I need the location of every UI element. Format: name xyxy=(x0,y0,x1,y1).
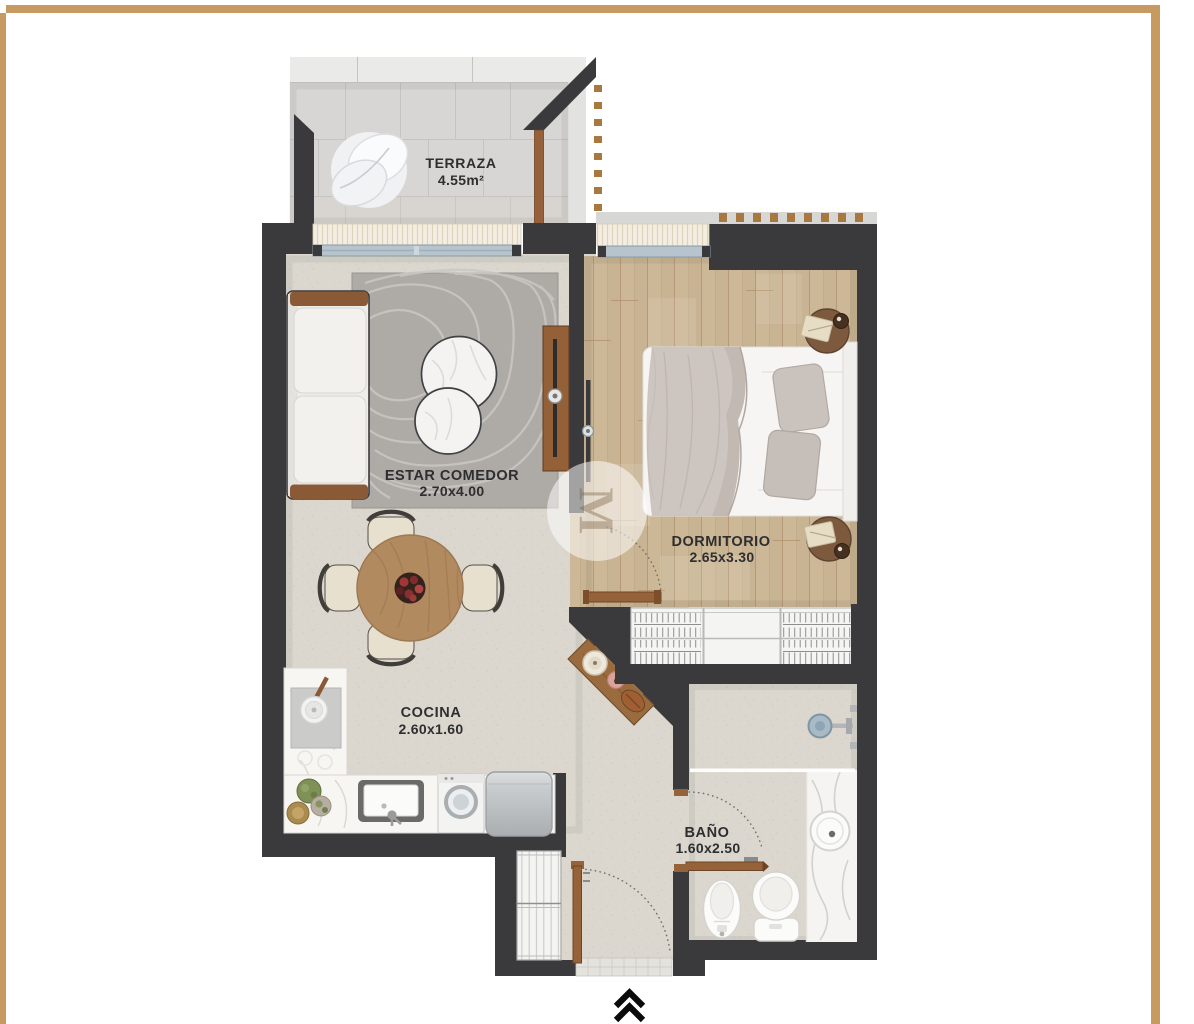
svg-text:M: M xyxy=(569,487,625,534)
svg-text:ESTAR COMEDOR: ESTAR COMEDOR xyxy=(385,468,519,484)
svg-text:BAÑO: BAÑO xyxy=(684,823,729,841)
svg-text:COCINA: COCINA xyxy=(401,705,462,721)
svg-text:4.55m²: 4.55m² xyxy=(438,172,484,188)
svg-text:DORMITORIO: DORMITORIO xyxy=(672,534,771,550)
svg-text:TERRAZA: TERRAZA xyxy=(425,155,496,171)
svg-text:1.60x2.50: 1.60x2.50 xyxy=(676,840,741,856)
svg-text:2.70x4.00: 2.70x4.00 xyxy=(420,483,485,499)
svg-text:2.65x3.30: 2.65x3.30 xyxy=(690,549,755,565)
svg-text:2.60x1.60: 2.60x1.60 xyxy=(399,721,464,737)
